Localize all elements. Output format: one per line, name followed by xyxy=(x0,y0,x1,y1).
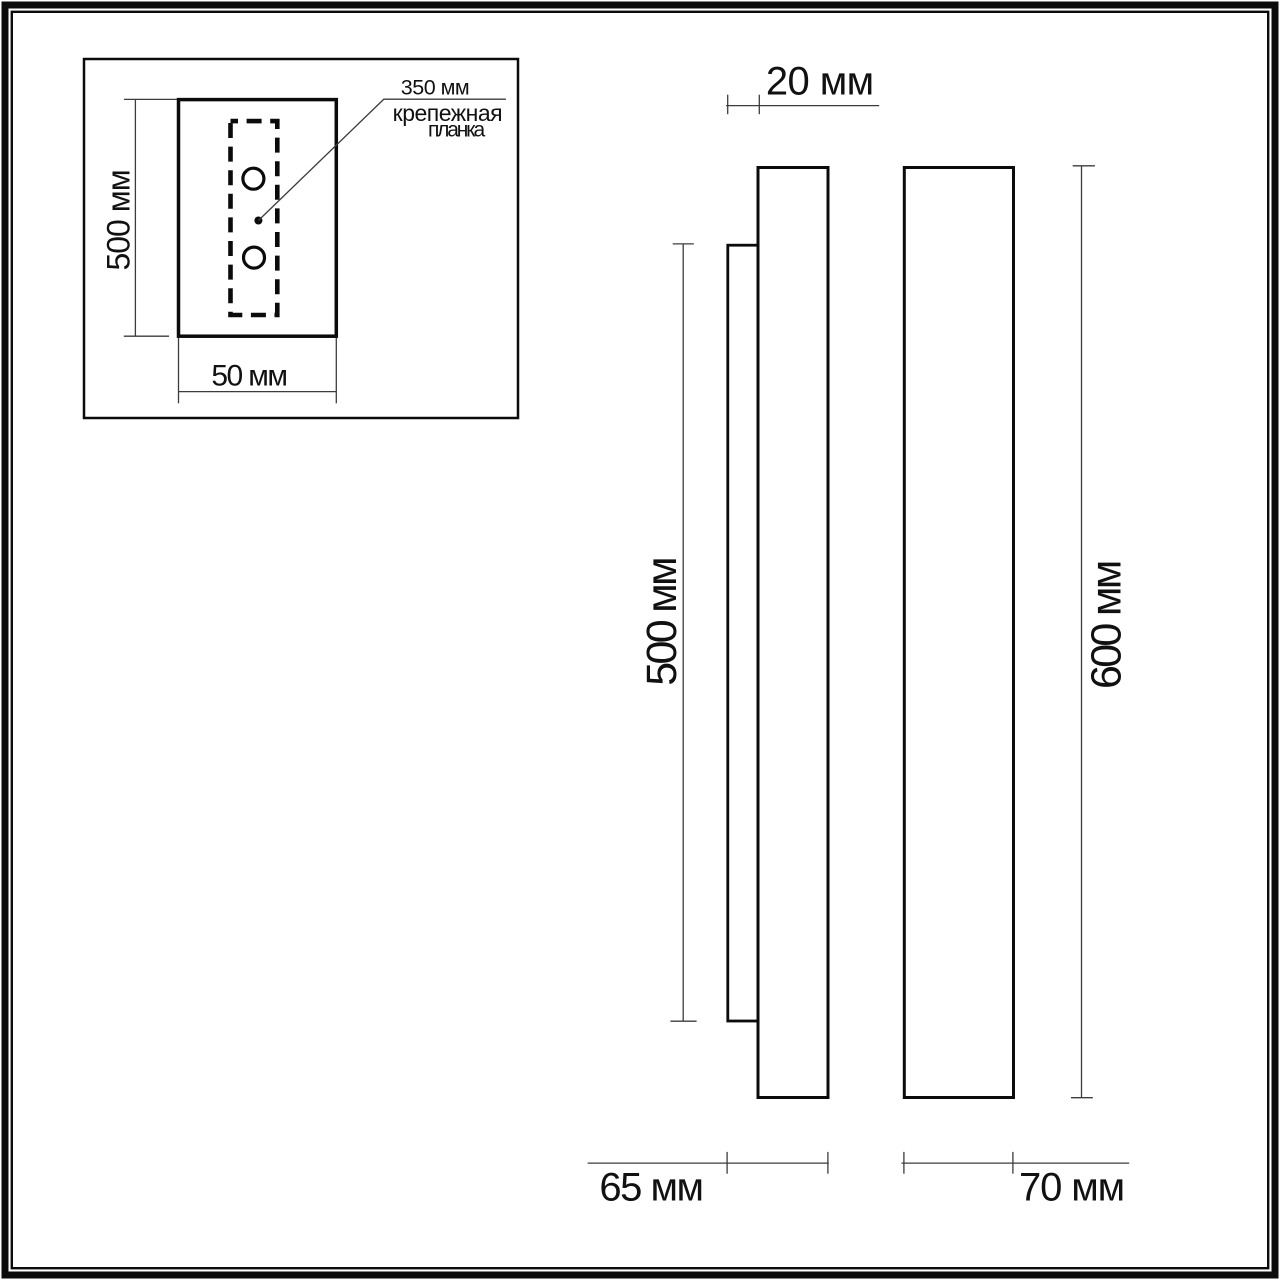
svg-text:50 мм: 50 мм xyxy=(211,360,286,393)
svg-text:500 мм: 500 мм xyxy=(101,170,137,270)
svg-text:20 мм: 20 мм xyxy=(766,60,874,104)
svg-text:600 мм: 600 мм xyxy=(1082,562,1130,689)
svg-text:350 мм: 350 мм xyxy=(401,75,469,99)
svg-text:планка: планка xyxy=(428,119,486,142)
svg-text:500 мм: 500 мм xyxy=(638,559,686,686)
svg-text:65 мм: 65 мм xyxy=(599,1166,702,1210)
svg-text:70 мм: 70 мм xyxy=(1019,1166,1124,1210)
